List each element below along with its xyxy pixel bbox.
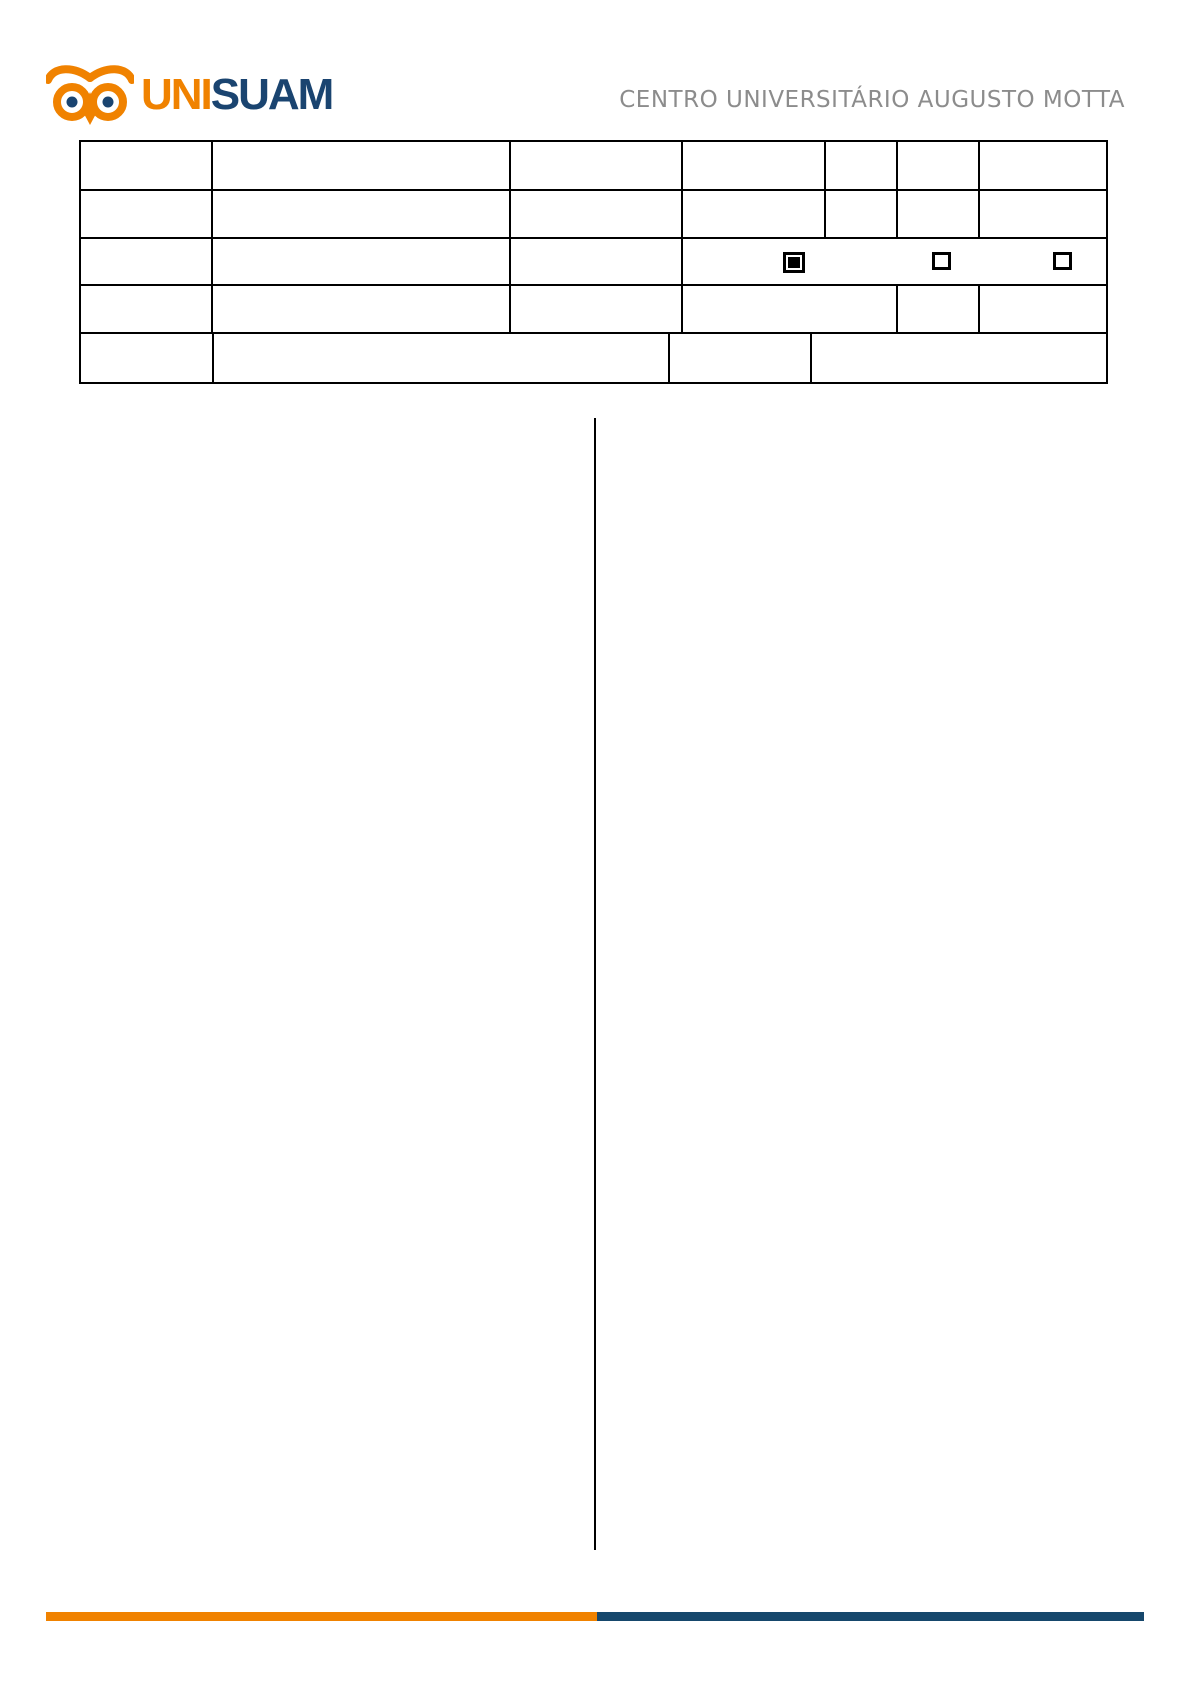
- form-field-r5c4: [812, 334, 1106, 382]
- form-field-r3c2: [213, 239, 511, 284]
- form-field-r3c3: [511, 239, 683, 284]
- form-field-r4c6: [980, 286, 1106, 332]
- form-field-r4c5: [898, 286, 980, 332]
- brand-wordmark: UNISUAM: [141, 73, 332, 117]
- checkbox-fill: [788, 257, 800, 268]
- column-divider: [594, 418, 596, 1550]
- checkbox-option-3[interactable]: [1053, 252, 1072, 270]
- form-field-r1c1: [81, 142, 213, 189]
- form-row-1: [81, 142, 1106, 191]
- form-field-r4c3: [511, 286, 683, 332]
- form-field-r2c4: [683, 191, 826, 237]
- form-table: [79, 140, 1108, 384]
- form-field-r2c3: [511, 191, 683, 237]
- form-field-r4c4: [683, 286, 898, 332]
- form-field-r2c1: [81, 191, 213, 237]
- form-field-r5c3: [670, 334, 812, 382]
- footer-bar: [46, 1612, 1144, 1621]
- form-field-r2c7: [980, 191, 1106, 237]
- footer-bar-navy-segment: [597, 1612, 1144, 1621]
- form-row-3: [81, 239, 1106, 286]
- form-row-2: [81, 191, 1106, 239]
- form-field-r1c5: [826, 142, 898, 189]
- form-field-r5c2: [214, 334, 670, 382]
- form-field-r5c1: [81, 334, 214, 382]
- form-field-r1c6: [898, 142, 980, 189]
- checkbox-option-1[interactable]: [783, 252, 805, 273]
- form-field-r2c5: [826, 191, 898, 237]
- checkbox-options-cell: [683, 239, 1106, 284]
- checkbox-option-2[interactable]: [932, 252, 951, 270]
- brand-text-uni: UNI: [141, 70, 211, 119]
- institution-title: CENTRO UNIVERSITÁRIO AUGUSTO MOTTA: [619, 87, 1125, 113]
- form-field-r1c2: [213, 142, 511, 189]
- form-field-r4c2: [213, 286, 511, 332]
- form-row-4: [81, 286, 1106, 334]
- form-field-r2c2: [213, 191, 511, 237]
- brand-text-suam: SUAM: [211, 70, 333, 119]
- document-page: UNISUAM CENTRO UNIVERSITÁRIO AUGUSTO MOT…: [0, 0, 1191, 1684]
- form-field-r1c4: [683, 142, 826, 189]
- form-field-r3c1: [81, 239, 213, 284]
- form-field-r1c3: [511, 142, 683, 189]
- form-field-r4c1: [81, 286, 213, 332]
- form-field-r1c7: [980, 142, 1106, 189]
- footer-bar-orange-segment: [46, 1612, 597, 1621]
- form-row-5: [81, 334, 1106, 382]
- form-field-r2c6: [898, 191, 980, 237]
- owl-icon: [46, 64, 134, 126]
- unisuam-logo: UNISUAM: [46, 62, 332, 128]
